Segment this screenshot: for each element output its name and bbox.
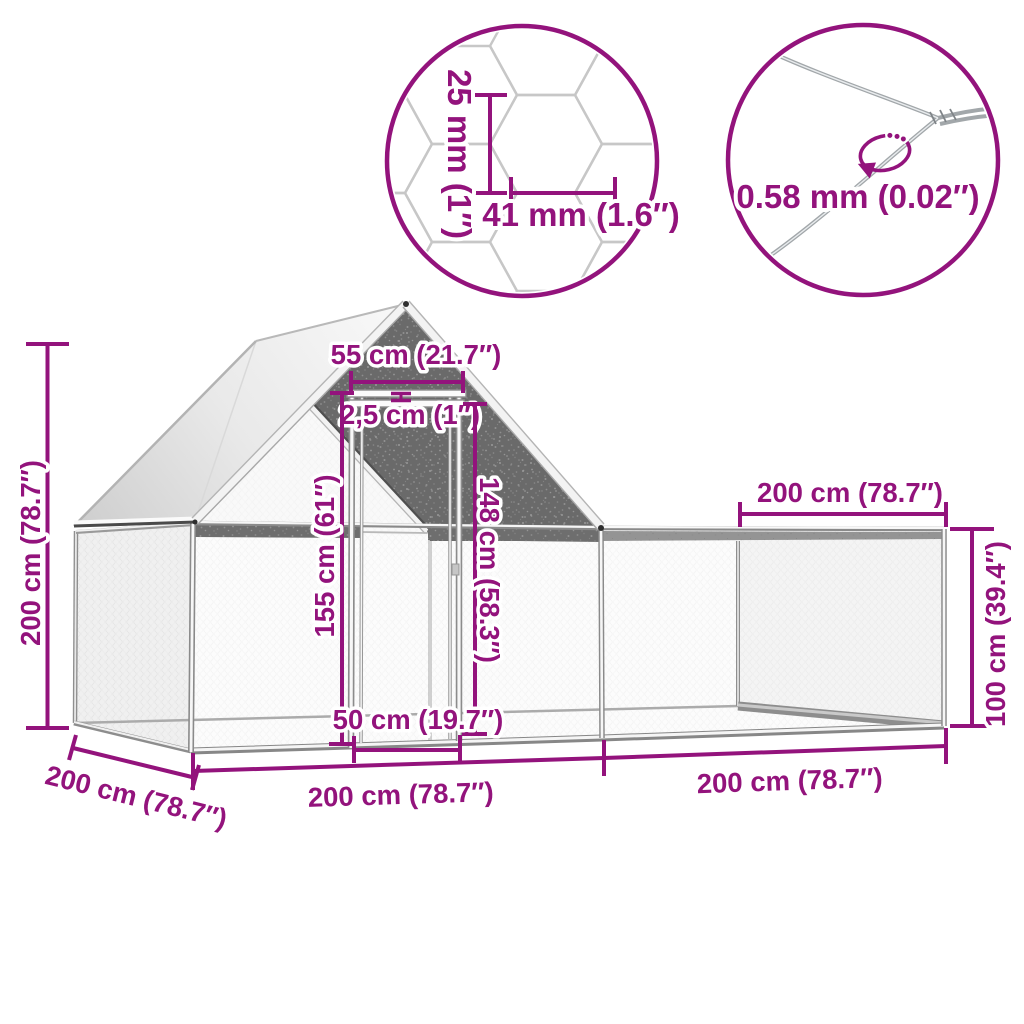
svg-text:2,5 cm (1″): 2,5 cm (1″): [340, 399, 480, 430]
svg-text:25 mm (1″): 25 mm (1″): [441, 69, 478, 239]
svg-text:200 cm (78.7″): 200 cm (78.7″): [307, 776, 494, 813]
svg-text:41 mm (1.6″): 41 mm (1.6″): [482, 196, 679, 233]
svg-text:0.58 mm (0.02″): 0.58 mm (0.02″): [736, 178, 979, 215]
svg-text:200 cm (78.7″): 200 cm (78.7″): [15, 460, 46, 646]
svg-text:50 cm (19.7″): 50 cm (19.7″): [333, 704, 504, 735]
svg-text:100 cm (39.4″): 100 cm (39.4″): [980, 541, 1011, 727]
svg-text:55 cm (21.7″): 55 cm (21.7″): [331, 339, 502, 370]
svg-text:200 cm (78.7″): 200 cm (78.7″): [757, 477, 943, 508]
svg-text:155 cm (61″): 155 cm (61″): [309, 475, 340, 638]
svg-text:200 cm (78.7″): 200 cm (78.7″): [696, 762, 883, 799]
svg-text:148 cm (58.3″): 148 cm (58.3″): [474, 477, 505, 663]
